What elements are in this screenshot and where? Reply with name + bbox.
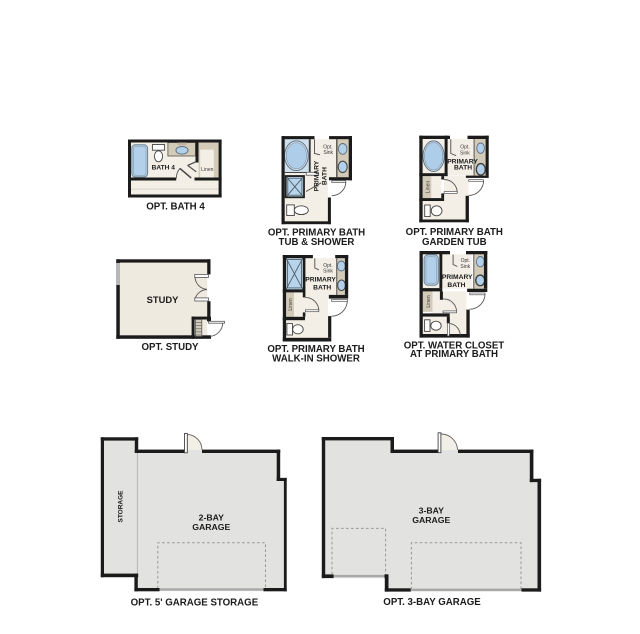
svg-text:Linen: Linen: [426, 295, 432, 307]
svg-text:BATH: BATH: [447, 282, 465, 289]
svg-text:Linen: Linen: [426, 181, 432, 193]
svg-text:Sink: Sink: [323, 269, 333, 275]
svg-text:AT PRIMARY BATH: AT PRIMARY BATH: [410, 349, 498, 360]
svg-text:Sink: Sink: [460, 150, 470, 156]
svg-text:PRIMARY: PRIMARY: [305, 277, 336, 284]
svg-text:PRIMARY: PRIMARY: [442, 274, 473, 281]
svg-text:Linen: Linen: [201, 167, 213, 173]
svg-text:BATH: BATH: [454, 164, 472, 171]
svg-text:GARAGE: GARAGE: [412, 515, 450, 525]
svg-text:TUB & SHOWER: TUB & SHOWER: [279, 237, 355, 248]
svg-text:PRIMARY: PRIMARY: [314, 160, 321, 191]
svg-text:Sink: Sink: [323, 150, 333, 156]
svg-text:OPT. 3-BAY GARAGE: OPT. 3-BAY GARAGE: [383, 597, 481, 608]
svg-text:GARDEN TUB: GARDEN TUB: [422, 237, 487, 248]
svg-text:OPT. BATH 4: OPT. BATH 4: [146, 201, 205, 212]
svg-text:Sink: Sink: [460, 264, 470, 270]
svg-text:OPT. 5' GARAGE STORAGE: OPT. 5' GARAGE STORAGE: [131, 597, 259, 608]
svg-text:STUDY: STUDY: [147, 294, 180, 305]
svg-text:STORAGE: STORAGE: [118, 490, 125, 523]
svg-text:BATH 4: BATH 4: [152, 165, 176, 172]
svg-text:BATH: BATH: [322, 167, 329, 185]
svg-text:BATH: BATH: [313, 284, 331, 291]
svg-text:WALK-IN SHOWER: WALK-IN SHOWER: [272, 353, 360, 364]
svg-text:GARAGE: GARAGE: [192, 522, 230, 532]
svg-text:Linen: Linen: [288, 298, 294, 310]
svg-text:OPT. STUDY: OPT. STUDY: [141, 342, 199, 353]
